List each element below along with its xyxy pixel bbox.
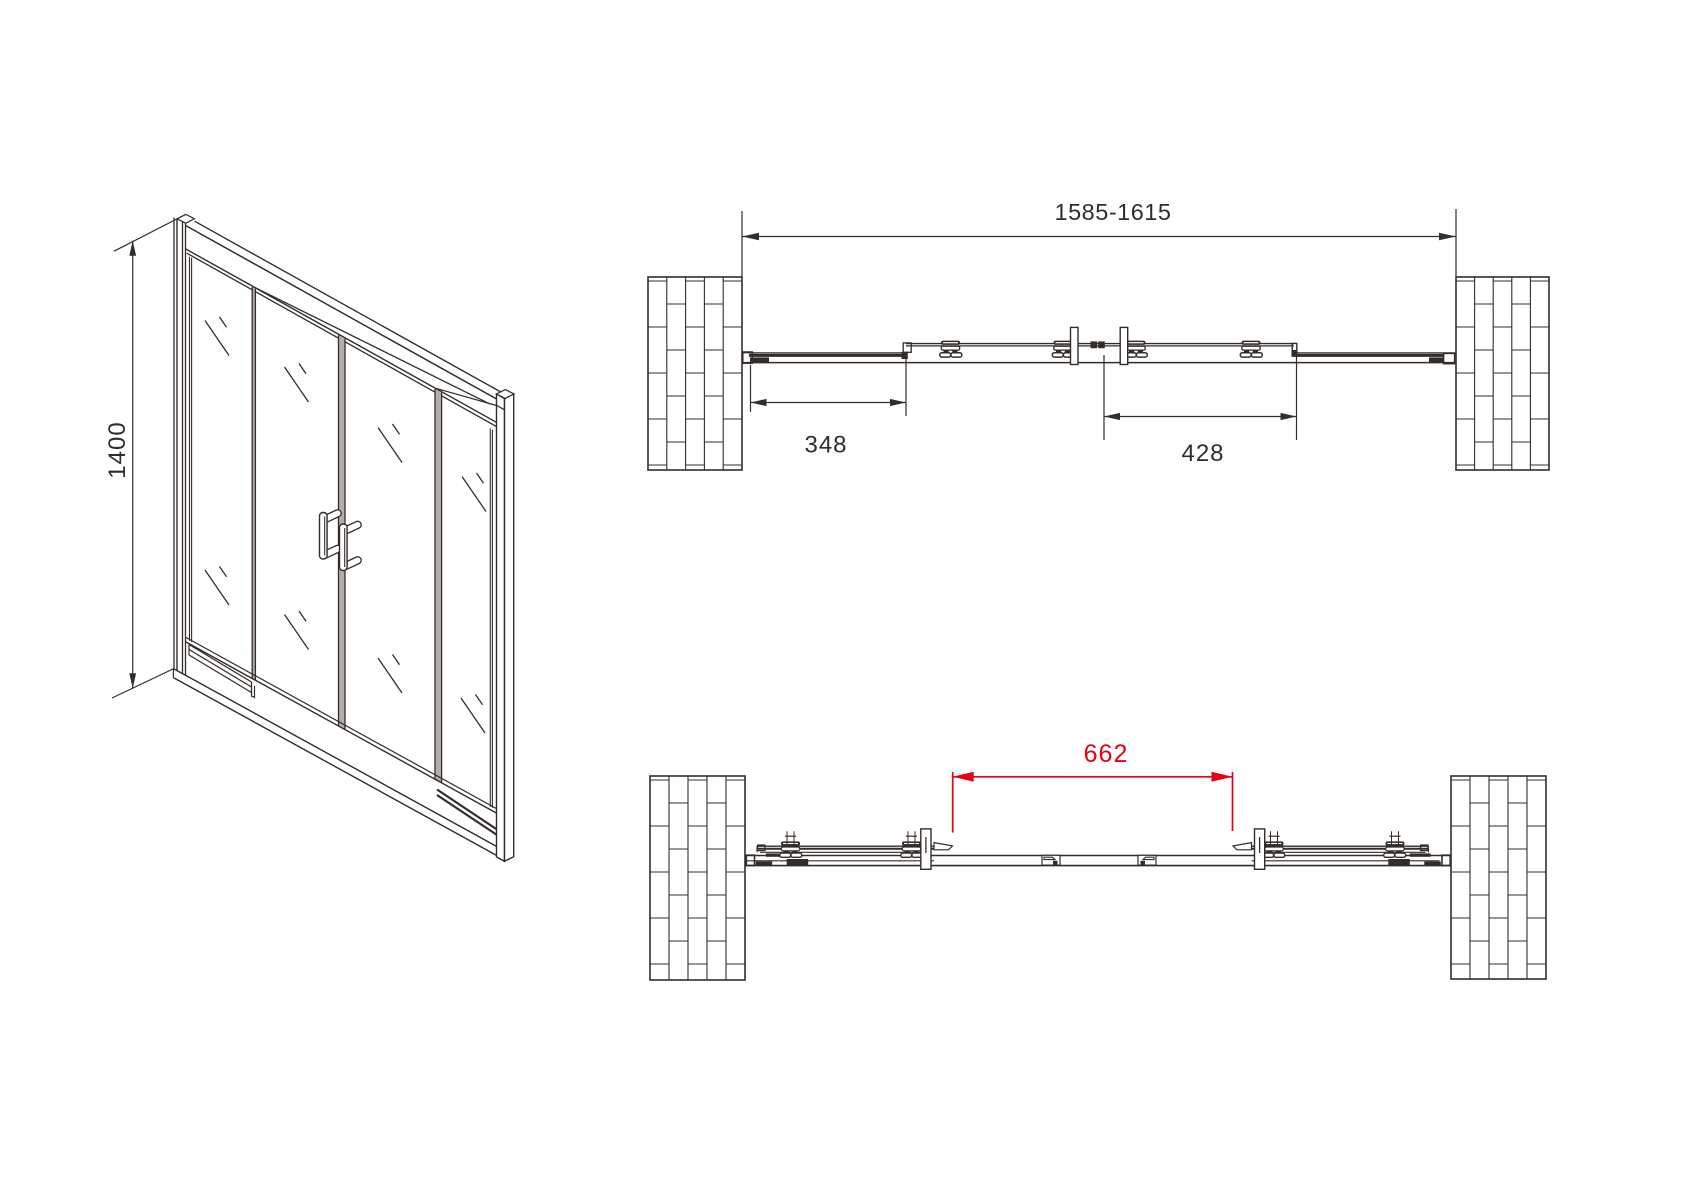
svg-text:662: 662	[1084, 740, 1129, 768]
svg-text:348: 348	[804, 432, 847, 459]
svg-text:428: 428	[1181, 440, 1224, 467]
svg-text:1400: 1400	[104, 421, 131, 478]
svg-text:1585-1615: 1585-1615	[1055, 199, 1172, 225]
